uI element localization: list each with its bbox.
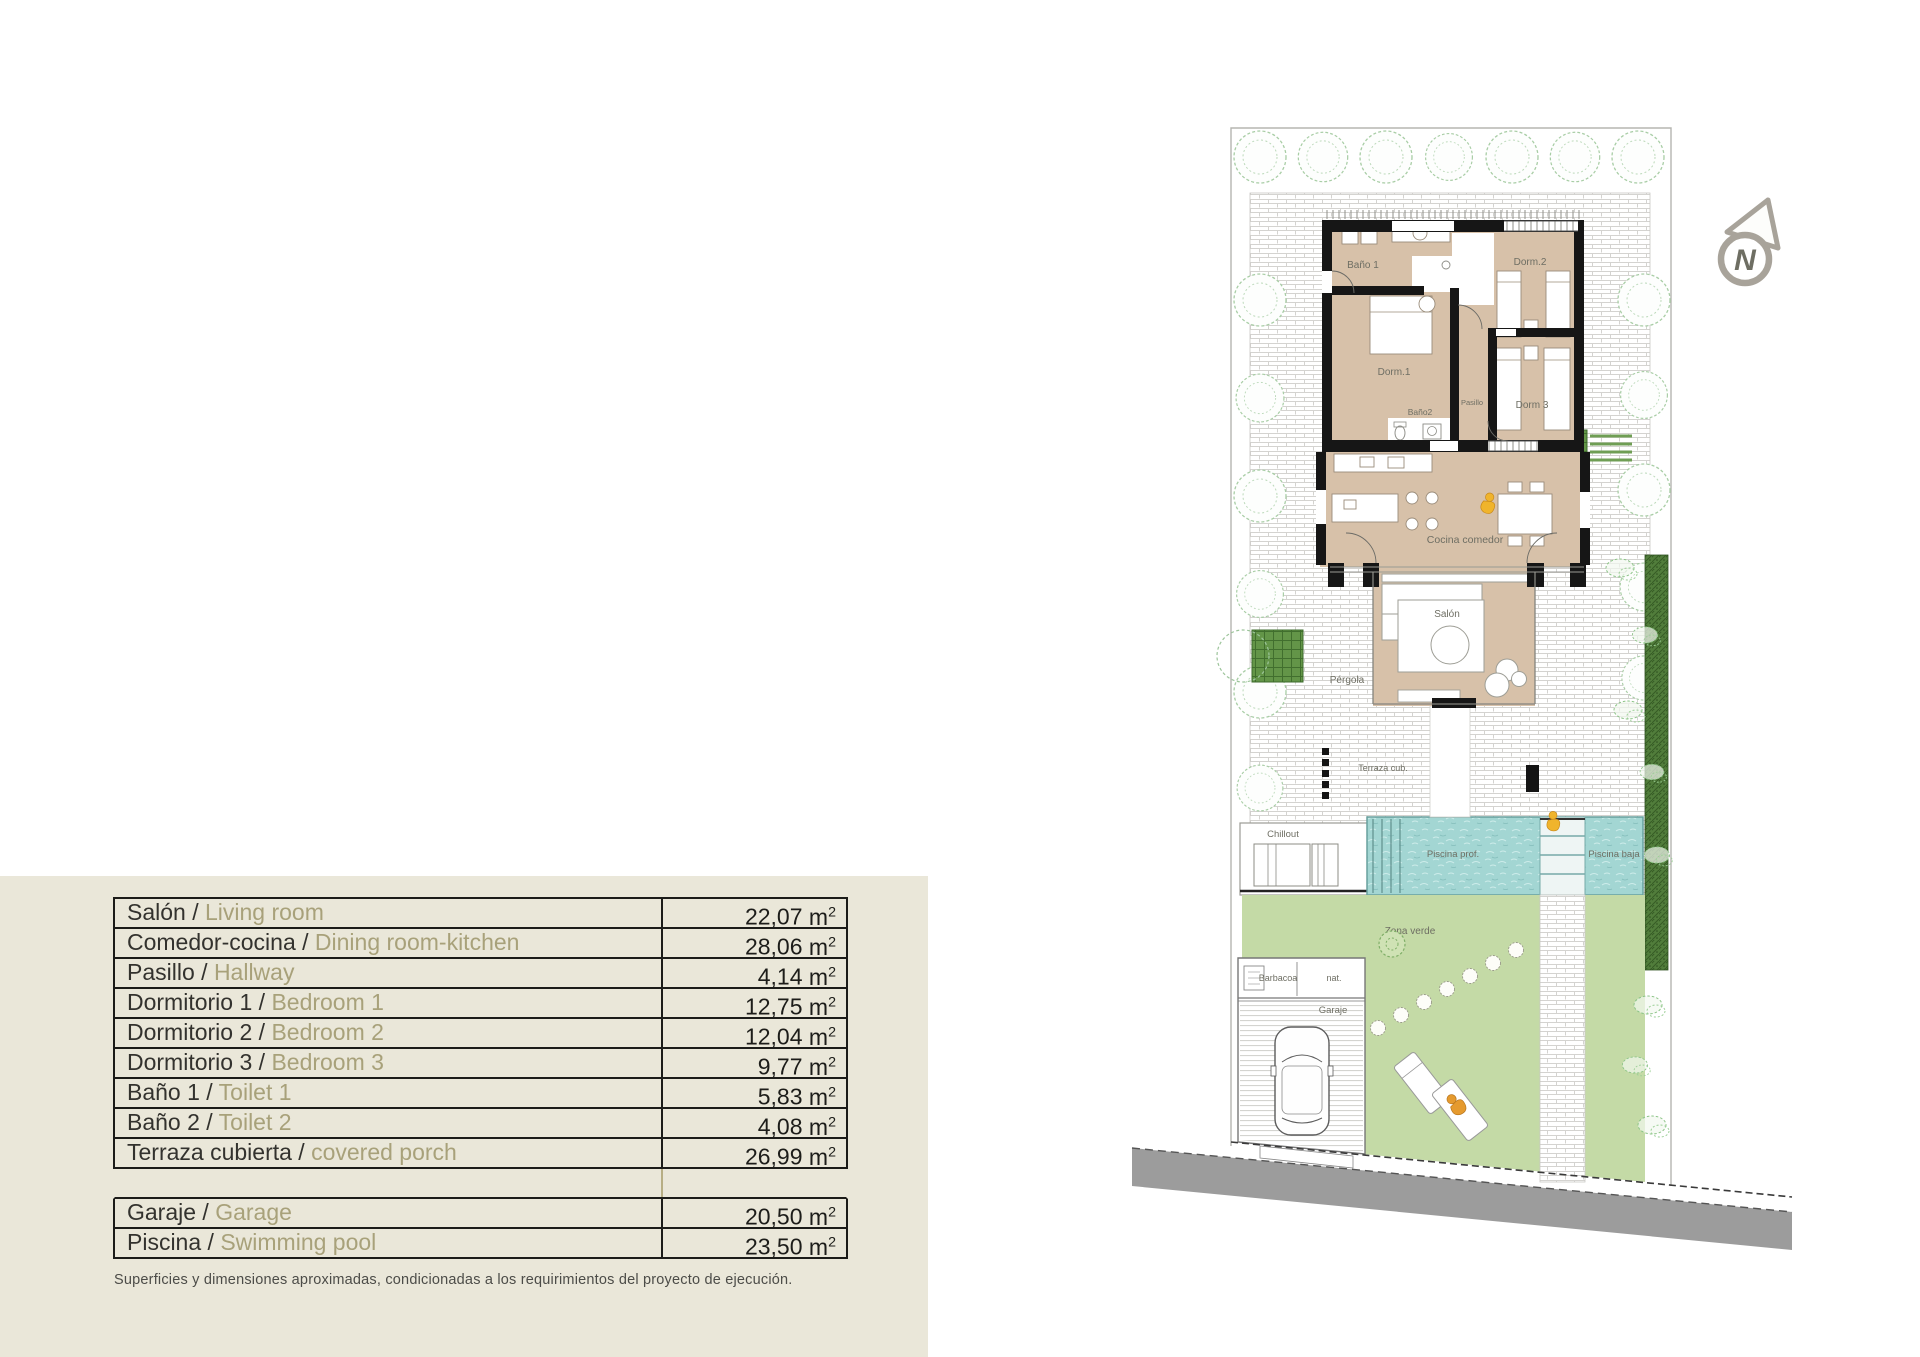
area-value-cell: 5,83 m2 — [663, 1079, 846, 1107]
room-label-bano1: Baño 1 — [1347, 260, 1379, 271]
area-unit: m2 — [809, 994, 836, 1020]
table-row: Dormitorio 3 / Bedroom 39,77 m2 — [113, 1049, 848, 1079]
area-unit: m2 — [809, 1024, 836, 1050]
room-label-bano2: Baño2 — [1408, 407, 1433, 417]
table-row: Piscina / Swimming pool23,50 m2 — [113, 1229, 848, 1259]
area-value-cell: 22,07 m2 — [663, 899, 846, 927]
room-name-es: Baño 1 — [127, 1079, 200, 1105]
room-name-en: Hallway — [214, 959, 295, 985]
pool-deep-label: Piscina prof. — [1427, 849, 1479, 860]
table-row: Salón / Living room22,07 m2 — [113, 899, 848, 929]
area-value: 4,08 — [758, 1114, 809, 1140]
room-name-es: Comedor-cocina — [127, 929, 296, 955]
barbecue-label: Barbacoa — [1259, 973, 1298, 983]
area-value: 28,06 — [745, 934, 809, 960]
area-value: 12,04 — [745, 1024, 809, 1050]
area-value: 4,14 — [758, 964, 809, 990]
lawn-tree — [1379, 931, 1405, 957]
table-row: Dormitorio 1 / Bedroom 112,75 m2 — [113, 989, 848, 1019]
compass-north-label: N — [1734, 244, 1757, 277]
garage-block: Barbacoa nat. Garaje — [1238, 958, 1365, 1168]
area-unit: m2 — [809, 1144, 836, 1170]
room-name-es: Garaje — [127, 1199, 196, 1225]
room-label-cell: Terraza cubierta / covered porch — [115, 1139, 663, 1167]
separator: / — [195, 959, 214, 985]
room-name-en: Swimming pool — [220, 1229, 376, 1255]
room-label-cell: Dormitorio 2 / Bedroom 2 — [115, 1019, 663, 1047]
area-value: 5,83 — [758, 1084, 809, 1110]
areas-table: Salón / Living room22,07 m2Comedor-cocin… — [113, 897, 848, 1259]
room-name-en: Toilet 2 — [219, 1109, 292, 1135]
room-name-es: Dormitorio 2 — [127, 1019, 252, 1045]
room-label-cell: Salón / Living room — [115, 899, 663, 927]
room-label-pasillo: Pasillo — [1461, 398, 1483, 407]
area-value-cell: 23,50 m2 — [663, 1229, 846, 1257]
table-row: Baño 2 / Toilet 24,08 m2 — [113, 1109, 848, 1139]
area-value: 22,07 — [745, 904, 809, 930]
table-row: Comedor-cocina / Dining room-kitchen28,0… — [113, 929, 848, 959]
room-name-en: covered porch — [311, 1139, 457, 1165]
room-label-dorm1: Dorm.1 — [1378, 367, 1411, 378]
room-name-en: Bedroom 3 — [271, 1049, 384, 1075]
swimming-pool: Piscina prof. Piscina baja — [1367, 811, 1643, 895]
separator: / — [186, 899, 205, 925]
room-name-es: Dormitorio 3 — [127, 1049, 252, 1075]
room-label-cell: Garaje / Garage — [115, 1199, 663, 1227]
separator: / — [292, 1139, 311, 1165]
room-name-en: Dining room-kitchen — [315, 929, 520, 955]
area-unit: m2 — [809, 934, 836, 960]
room-label-cell: Baño 1 / Toilet 1 — [115, 1079, 663, 1107]
area-unit: m2 — [809, 1114, 836, 1140]
separator: / — [200, 1079, 219, 1105]
roof-overhang-hatch — [1324, 210, 1582, 219]
covered-terrace-label: Terraza cub. — [1358, 763, 1408, 773]
car-icon — [1271, 1027, 1333, 1135]
room-name-es: Dormitorio 1 — [127, 989, 252, 1015]
area-value: 12,75 — [745, 994, 809, 1020]
area-unit: m2 — [809, 964, 836, 990]
area-unit: m2 — [809, 1234, 836, 1260]
room-name-en: Toilet 1 — [219, 1079, 292, 1105]
room-label-salon: Salón — [1434, 609, 1460, 620]
room-name-es: Baño 2 — [127, 1109, 200, 1135]
area-value-cell: 28,06 m2 — [663, 929, 846, 957]
room-label-cell: Dormitorio 1 / Bedroom 1 — [115, 989, 663, 1017]
room-name-en: Garage — [215, 1199, 292, 1225]
site-plan: Chillout Piscina prof. Piscina baja Zona… — [1120, 100, 1810, 1290]
separator: / — [200, 1109, 219, 1135]
chillout-label: Chillout — [1267, 829, 1299, 840]
area-unit: m2 — [809, 1204, 836, 1230]
separator: / — [296, 929, 315, 955]
area-unit: m2 — [809, 1054, 836, 1080]
disclaimer-text: Superficies y dimensiones aproximadas, c… — [114, 1272, 793, 1288]
room-label-cell: Piscina / Swimming pool — [115, 1229, 663, 1257]
north-compass-icon: N — [1721, 200, 1778, 283]
separator: / — [252, 1049, 271, 1075]
area-value-cell — [663, 1169, 846, 1197]
room-label-dorm2: Dorm.2 — [1514, 257, 1547, 268]
area-value: 20,50 — [745, 1204, 809, 1230]
room-name-en: Living room — [205, 899, 324, 925]
separator: / — [196, 1199, 215, 1225]
pergola-label: Pérgola — [1330, 675, 1365, 686]
area-value: 9,77 — [758, 1054, 809, 1080]
table-row: Terraza cubierta / covered porch26,99 m2 — [113, 1139, 848, 1169]
separator: / — [201, 1229, 220, 1255]
room-label-cell: Dormitorio 3 / Bedroom 3 — [115, 1049, 663, 1077]
area-value-cell: 20,50 m2 — [663, 1199, 846, 1227]
room-name-es: Salón — [127, 899, 186, 925]
area-value-cell: 4,08 m2 — [663, 1109, 846, 1137]
room-label-cell — [115, 1169, 663, 1197]
table-row: Dormitorio 2 / Bedroom 212,04 m2 — [113, 1019, 848, 1049]
area-value-cell: 9,77 m2 — [663, 1049, 846, 1077]
area-value-cell: 26,99 m2 — [663, 1139, 846, 1167]
page: Salón / Living room22,07 m2Comedor-cocin… — [0, 0, 1920, 1357]
table-row: Baño 1 / Toilet 15,83 m2 — [113, 1079, 848, 1109]
room-name-en: Bedroom 2 — [271, 1019, 384, 1045]
area-unit: m2 — [809, 904, 836, 930]
room-label-cell: Pasillo / Hallway — [115, 959, 663, 987]
area-value-cell: 12,75 m2 — [663, 989, 846, 1017]
room-label-cell: Comedor-cocina / Dining room-kitchen — [115, 929, 663, 957]
room-label-cell: Baño 2 / Toilet 2 — [115, 1109, 663, 1137]
room-name-es: Pasillo — [127, 959, 195, 985]
room-label-dorm3: Dorm 3 — [1516, 400, 1549, 411]
table-row: Garaje / Garage20,50 m2 — [113, 1199, 848, 1229]
separator: / — [252, 989, 271, 1015]
room-name-es: Terraza cubierta — [127, 1139, 292, 1165]
room-name-es: Piscina — [127, 1229, 201, 1255]
room-label-cocina: Cocina comedor — [1427, 534, 1504, 546]
area-value: 23,50 — [745, 1234, 809, 1260]
area-value-cell: 12,04 m2 — [663, 1019, 846, 1047]
area-unit: m2 — [809, 1084, 836, 1110]
table-row-spacer — [113, 1169, 848, 1199]
pool-shallow-label: Piscina baja — [1588, 849, 1640, 860]
area-value: 26,99 — [745, 1144, 809, 1170]
garden-path — [1540, 895, 1585, 1182]
area-value-cell: 4,14 m2 — [663, 959, 846, 987]
separator: / — [252, 1019, 271, 1045]
garage-label: Garaje — [1319, 1005, 1348, 1016]
room-name-en: Bedroom 1 — [271, 989, 384, 1015]
barbecue-type-label: nat. — [1326, 973, 1341, 983]
table-row: Pasillo / Hallway4,14 m2 — [113, 959, 848, 989]
